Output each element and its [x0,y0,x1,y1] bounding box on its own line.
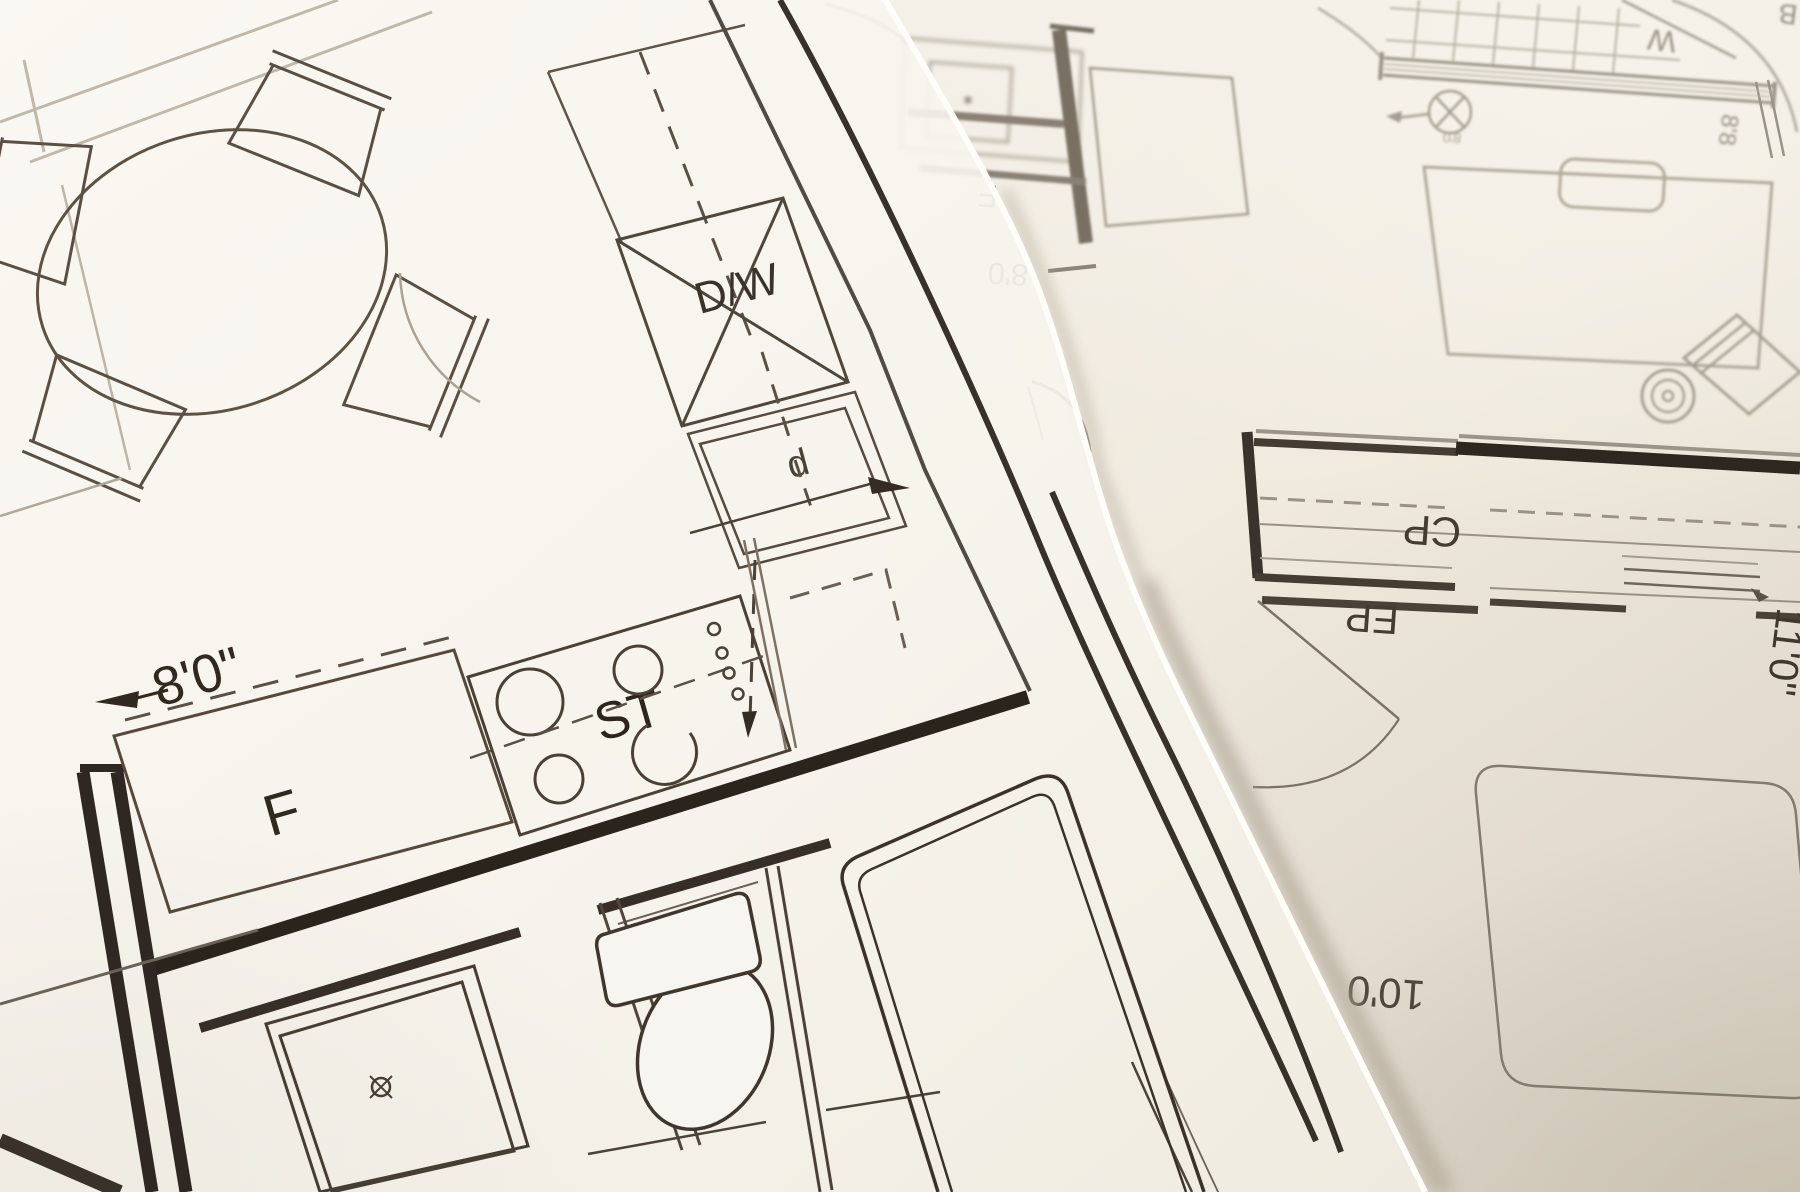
svg-text:8'0: 8'0 [1442,129,1462,146]
svg-text:B: B [1777,0,1799,31]
svg-text:EP: EP [1344,594,1400,642]
svg-text:8'8: 8'8 [1713,113,1744,147]
svg-text:CP: CP [1401,506,1462,557]
svg-text:W: W [1645,22,1678,58]
